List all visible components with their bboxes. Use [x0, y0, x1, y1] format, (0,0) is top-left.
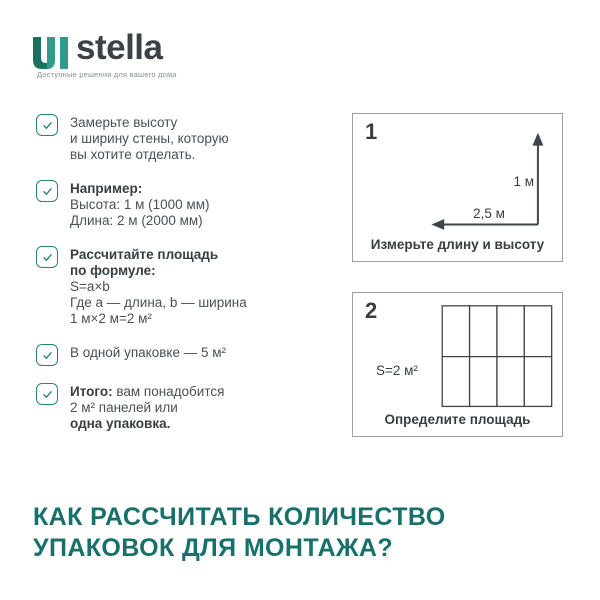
logo-icon [33, 37, 69, 69]
checklist-text: Итого: вам понадобится2 м² панелей илиод… [70, 384, 224, 432]
checklist-text: Замерьте высотуи ширину стены, которуювы… [70, 115, 229, 163]
width-label: 2,5 м [453, 206, 525, 222]
checkbox-icon [36, 246, 58, 268]
step-1-caption: Измерьте длину и высоту [353, 237, 562, 252]
area-label: S=2 м² [376, 363, 418, 378]
checklist-item: Итого: вам понадобится2 м² панелей илиод… [36, 384, 341, 432]
step-2-caption: Определите площадь [353, 412, 562, 427]
checklist-item: Замерьте высотуи ширину стены, которуювы… [36, 115, 341, 163]
height-label: 1 м [513, 174, 534, 190]
page-heading: КАК РАССЧИТАТЬ КОЛИЧЕСТВО УПАКОВОК ДЛЯ М… [33, 502, 446, 564]
checklist-text: В одной упаковке — 5 м² [70, 345, 226, 361]
checklist-item: В одной упаковке — 5 м² [36, 345, 341, 366]
checklist-text: Например:Высота: 1 м (1000 мм)Длина: 2 м… [70, 181, 210, 229]
checkbox-icon [36, 114, 58, 136]
step-1-card: 1 1 м 2,5 м Измерьте длину и высоту [352, 113, 563, 262]
brand-name: stella [76, 28, 163, 68]
checklist-item: Рассчитайте площадьпо формуле:S=a×bГде a… [36, 247, 341, 327]
checkbox-icon [36, 180, 58, 202]
checklist-text: Рассчитайте площадьпо формуле:S=a×bГде a… [70, 247, 247, 327]
page-heading-line1: КАК РАССЧИТАТЬ КОЛИЧЕСТВО [33, 502, 446, 533]
page-heading-line2: УПАКОВОК ДЛЯ МОНТАЖА? [33, 533, 446, 564]
step-2-card: 2 S=2 м² Определите площадь [352, 292, 563, 437]
checkbox-icon [36, 383, 58, 405]
brand-tagline: Доступные решения для вашего дома [37, 70, 177, 79]
checkbox-icon [36, 344, 58, 366]
checklist-item: Например:Высота: 1 м (1000 мм)Длина: 2 м… [36, 181, 341, 229]
checklist: Замерьте высотуи ширину стены, которуювы… [36, 115, 341, 432]
